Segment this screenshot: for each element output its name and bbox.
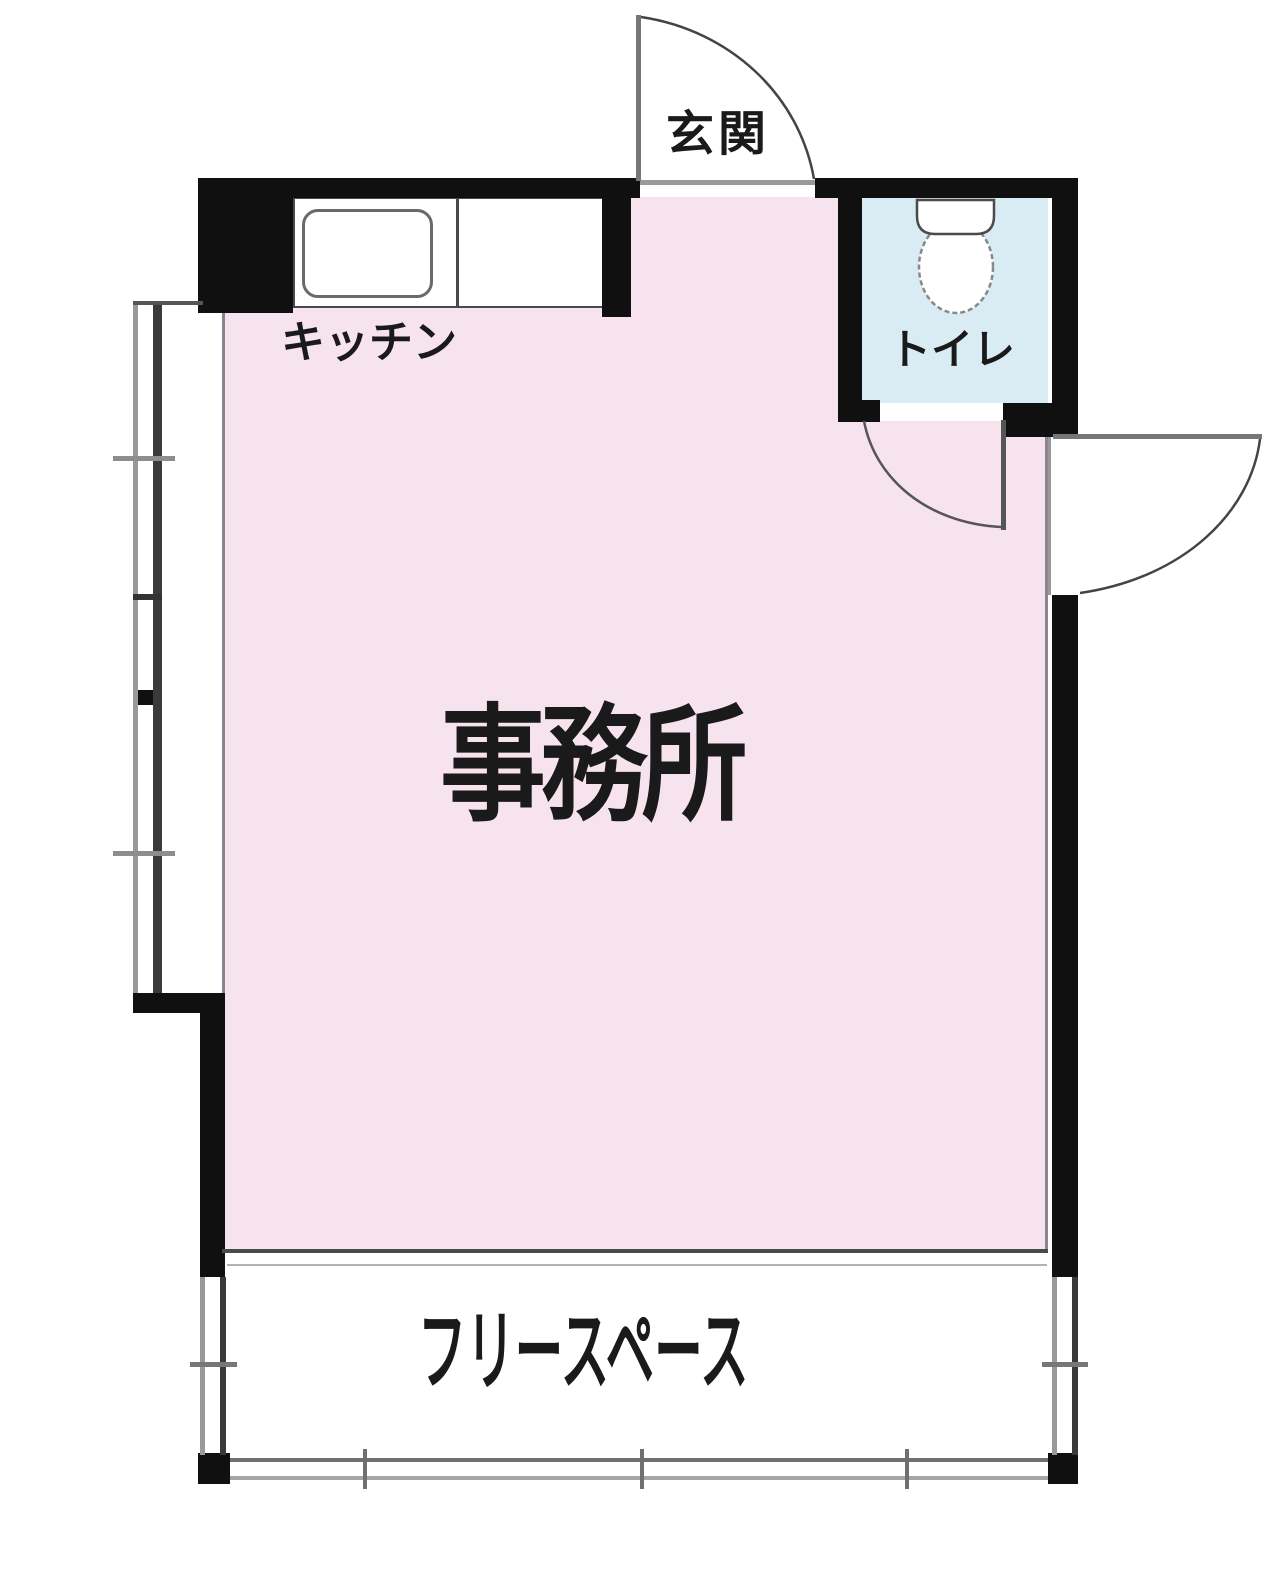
toilet-tank [917, 200, 994, 234]
entrance-label: 玄関 [666, 110, 770, 160]
toilet-door-swing-arc [864, 421, 1001, 527]
kitchen-label: キッチン [281, 320, 457, 366]
free-space-label: フリースペース [418, 1306, 749, 1398]
toilet-label: トイレ [889, 328, 1015, 372]
office-label: 事務所 [440, 700, 742, 832]
side-door-swing-arc [1080, 439, 1260, 593]
floor-plan: 玄関 キッチン トイレ 事務所 フリースペース [0, 0, 1280, 1586]
